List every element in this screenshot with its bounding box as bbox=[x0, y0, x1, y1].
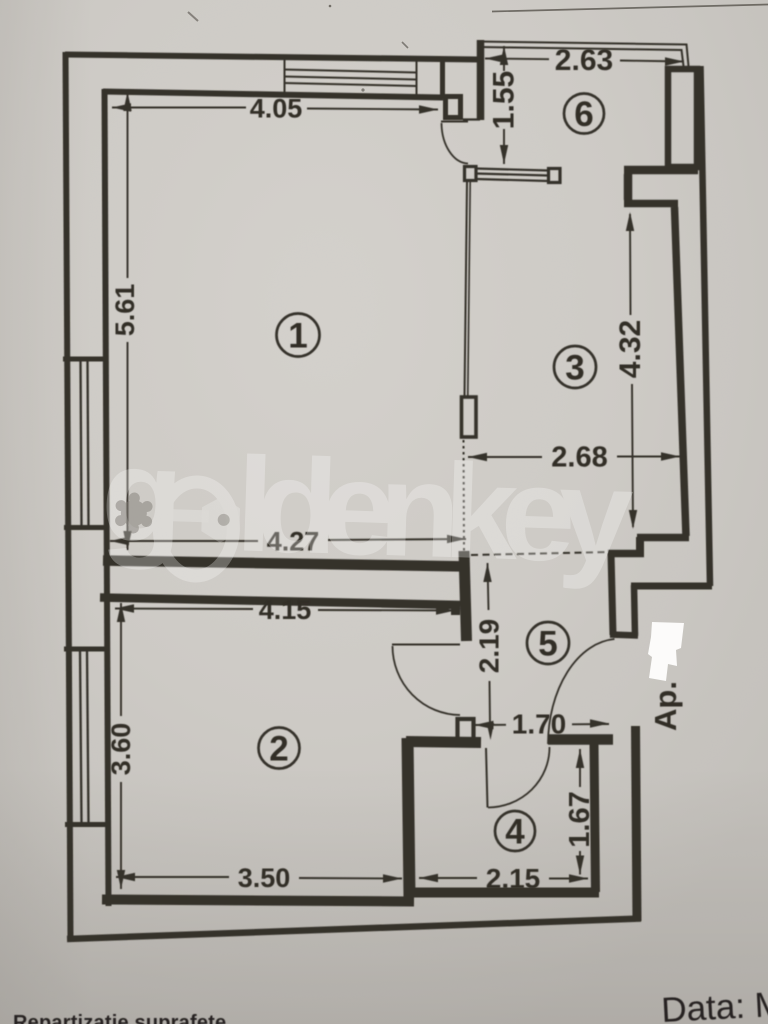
svg-text:2.19: 2.19 bbox=[474, 619, 505, 674]
svg-text:3: 3 bbox=[565, 349, 584, 388]
svg-text:1.55: 1.55 bbox=[488, 71, 521, 129]
svg-text:4: 4 bbox=[505, 813, 525, 852]
svg-text:5.61: 5.61 bbox=[110, 284, 140, 337]
svg-text:5: 5 bbox=[538, 625, 557, 664]
svg-text:4.32: 4.32 bbox=[614, 320, 647, 378]
svg-text:2: 2 bbox=[269, 730, 288, 769]
svg-text:3.50: 3.50 bbox=[238, 863, 291, 893]
svg-text:4.15: 4.15 bbox=[259, 595, 312, 625]
svg-text:Ap.: Ap. bbox=[648, 681, 683, 731]
svg-text:1.67: 1.67 bbox=[564, 791, 596, 847]
svg-text:1: 1 bbox=[288, 317, 307, 356]
svg-text:4.05: 4.05 bbox=[250, 94, 303, 124]
svg-text:2.15: 2.15 bbox=[486, 863, 541, 894]
svg-text:1.70: 1.70 bbox=[512, 709, 567, 740]
svg-text:3.60: 3.60 bbox=[106, 723, 136, 776]
svg-text:Repartizatie suprafete: Repartizatie suprafete bbox=[13, 1012, 226, 1024]
svg-text:Data: M: Data: M bbox=[660, 985, 768, 1024]
svg-text:ldenkey: ldenkey bbox=[234, 430, 635, 591]
svg-text:2.63: 2.63 bbox=[555, 44, 613, 77]
svg-text:6: 6 bbox=[574, 95, 593, 134]
